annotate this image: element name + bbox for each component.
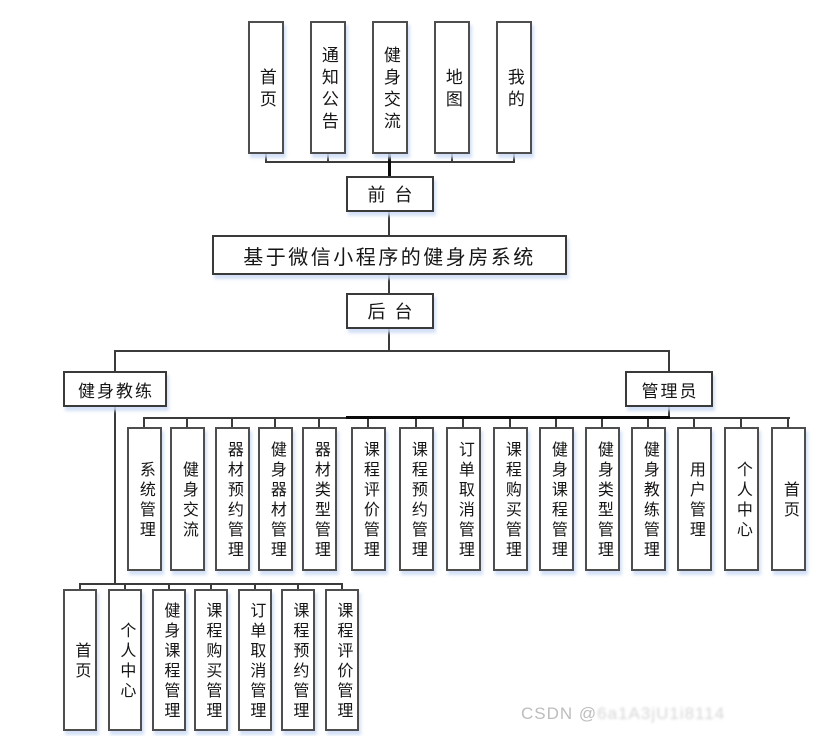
node-root-system: 基于微信小程序的健身房系统	[212, 235, 567, 275]
node-admin-fitness-course-mgmt: 健身课程管理	[539, 427, 574, 571]
connector	[346, 416, 670, 419]
node-front-mine: 我的	[496, 21, 532, 154]
node-admin-user-mgmt: 用户管理	[677, 427, 712, 571]
label: 健身器材管理	[267, 437, 284, 561]
node-coach-order-cancel-mgmt: 订单取消管理	[238, 589, 272, 731]
label: 器材预约管理	[224, 437, 241, 561]
node-coach-home: 首页	[63, 589, 97, 731]
label: 器材类型管理	[311, 437, 328, 561]
node-coach-fitness-course-mgmt: 健身课程管理	[152, 589, 186, 731]
node-back-portal: 后台	[346, 293, 434, 329]
node-admin-course-review-mgmt: 课程评价管理	[351, 427, 386, 571]
watermark: CSDN @6a1A3jU1i8114	[521, 704, 725, 724]
node-admin-system-mgmt: 系统管理	[127, 427, 162, 571]
connector	[388, 329, 390, 351]
node-admin-fitness-forum: 健身交流	[170, 427, 205, 571]
label: 个人中心	[733, 457, 750, 541]
label: 健身课程管理	[548, 437, 565, 561]
node-front-portal: 前台	[346, 176, 434, 212]
connector	[388, 275, 390, 293]
node-admin: 管理员	[625, 371, 713, 407]
label: 健身教练管理	[640, 437, 657, 561]
label: 健身交流	[179, 457, 196, 541]
node-admin-fitness-type-mgmt: 健身类型管理	[585, 427, 620, 571]
label: 我的	[505, 64, 523, 112]
node-front-fitness-forum: 健身交流	[372, 21, 408, 154]
org-diagram: 首页 通知公告 健身交流 地图 我的 前台 基于微信小程序的健身房系统 后台 健…	[0, 0, 836, 736]
label: 健身课程管理	[161, 598, 178, 722]
label: 订单取消管理	[247, 598, 264, 722]
node-admin-coach-mgmt: 健身教练管理	[631, 427, 666, 571]
watermark-author: 6a1A3jU1i8114	[597, 704, 725, 723]
node-coach-course-booking-mgmt: 课程预约管理	[281, 589, 315, 731]
label: 课程购买管理	[203, 598, 220, 722]
node-coach: 健身教练	[63, 371, 167, 407]
label: 课程预约管理	[408, 437, 425, 561]
label: 首页	[780, 477, 797, 521]
label: 首页	[257, 64, 275, 112]
node-admin-equipment-booking-mgmt: 器材预约管理	[215, 427, 250, 571]
node-front-home: 首页	[248, 21, 284, 154]
node-admin-course-purchase-mgmt: 课程购买管理	[493, 427, 528, 571]
label: 通知公告	[319, 42, 337, 134]
watermark-brand: CSDN @	[521, 704, 597, 723]
node-admin-equipment-type-mgmt: 器材类型管理	[302, 427, 337, 571]
connector	[388, 154, 391, 176]
node-coach-personal-center: 个人中心	[108, 589, 142, 731]
label: 系统管理	[136, 457, 153, 541]
connector	[114, 351, 116, 371]
label: 健身交流	[381, 42, 399, 134]
label: 首页	[72, 638, 89, 682]
connector	[114, 350, 670, 352]
label: 地图	[443, 64, 461, 112]
node-admin-course-booking-mgmt: 课程预约管理	[399, 427, 434, 571]
label: 课程评价管理	[334, 598, 351, 722]
node-admin-personal-center: 个人中心	[724, 427, 759, 571]
node-front-notice: 通知公告	[310, 21, 346, 154]
label: 用户管理	[686, 457, 703, 541]
label: 课程评价管理	[360, 437, 377, 561]
node-admin-fitness-equipment-mgmt: 健身器材管理	[258, 427, 293, 571]
label: 个人中心	[117, 618, 134, 702]
label: 健身类型管理	[594, 437, 611, 561]
node-front-map: 地图	[434, 21, 470, 154]
label: 课程预约管理	[290, 598, 307, 722]
node-coach-course-purchase-mgmt: 课程购买管理	[194, 589, 228, 731]
node-admin-home: 首页	[771, 427, 806, 571]
label: 订单取消管理	[455, 437, 472, 561]
node-coach-course-review-mgmt: 课程评价管理	[325, 589, 359, 731]
connector	[388, 212, 390, 235]
node-admin-order-cancel-mgmt: 订单取消管理	[446, 427, 481, 571]
connector	[114, 406, 116, 584]
label: 课程购买管理	[502, 437, 519, 561]
connector	[668, 351, 670, 371]
